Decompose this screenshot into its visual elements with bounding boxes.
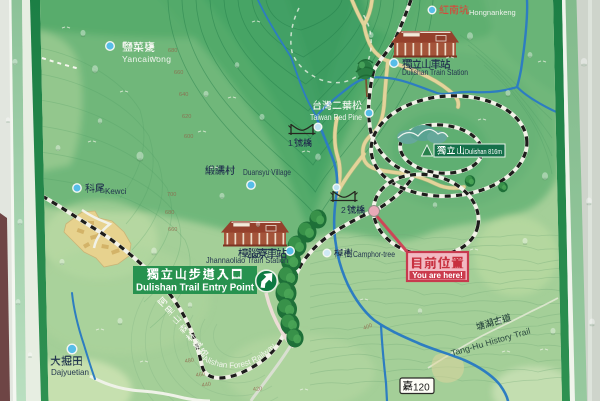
- svg-text:2: 2: [341, 205, 346, 215]
- svg-text:680: 680: [165, 210, 174, 216]
- svg-text:Jhannaoliao Train Station: Jhannaoliao Train Station: [206, 255, 288, 265]
- svg-text:Dulishan Train Station: Dulishan Train Station: [402, 67, 468, 77]
- svg-text:Camphor-tree: Camphor-tree: [353, 249, 395, 259]
- svg-text:120: 120: [413, 383, 430, 394]
- svg-text:680: 680: [168, 48, 177, 54]
- svg-text:Dulishan 816m: Dulishan 816m: [465, 147, 502, 156]
- svg-text:600: 600: [184, 134, 193, 140]
- svg-text:640: 640: [179, 92, 188, 98]
- svg-text:Dulishan Trail Entry Point: Dulishan Trail Entry Point: [136, 282, 254, 294]
- svg-text:660: 660: [174, 70, 183, 76]
- svg-text:Taiwan Red Pine: Taiwan Red Pine: [310, 112, 362, 122]
- svg-text:620: 620: [182, 114, 191, 120]
- svg-text:You are here!: You are here!: [412, 271, 463, 280]
- svg-text:1: 1: [288, 138, 293, 148]
- svg-text:Duansyu Village: Duansyu Village: [243, 167, 291, 177]
- svg-text:Dajyuetian: Dajyuetian: [51, 367, 89, 377]
- svg-text:Kewci: Kewci: [105, 187, 127, 196]
- svg-text:660: 660: [168, 227, 177, 233]
- svg-text:Hongnankeng: Hongnankeng: [469, 8, 516, 17]
- svg-text:700: 700: [167, 192, 176, 198]
- svg-text:420: 420: [253, 386, 263, 393]
- svg-text:Yancaiwong: Yancaiwong: [122, 54, 171, 64]
